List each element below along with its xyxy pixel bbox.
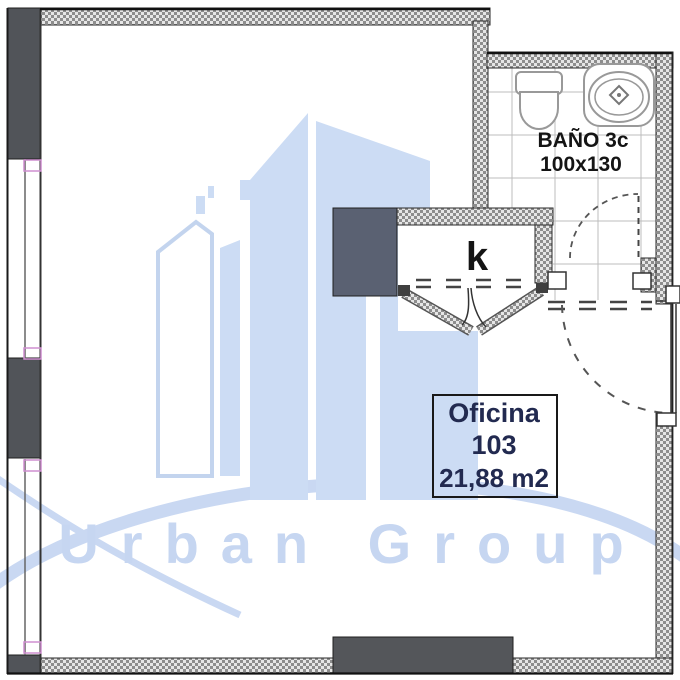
wall-bathroom-left xyxy=(473,21,488,210)
wall-left-block-top xyxy=(8,8,41,159)
wall-left-block-middle xyxy=(8,358,41,458)
window2-cap-bottom xyxy=(24,642,41,653)
wall-right-lower xyxy=(656,413,672,658)
bathroom-dims-label: 100x130 xyxy=(540,153,622,176)
jamb-right-edge xyxy=(666,286,680,303)
floorplan-page: Urban Group xyxy=(0,0,680,680)
office-area-label: 21,88 m2 xyxy=(439,463,549,493)
toilet-icon xyxy=(516,72,562,129)
wall-right-upper xyxy=(656,52,672,304)
wall-top xyxy=(40,8,490,25)
jamb-entry-bottom xyxy=(657,413,676,426)
wall-left-block-bottom xyxy=(8,655,41,674)
window1-cap-top xyxy=(24,160,41,171)
bathroom-fixtures xyxy=(516,64,654,129)
kitchen-door-hinge-left xyxy=(398,285,410,296)
jamb-kitchen-wall xyxy=(548,272,566,289)
kitchen-door-hinge-right xyxy=(536,283,548,293)
wall-kitchen-top xyxy=(397,208,553,225)
window2-cap-top xyxy=(24,460,41,471)
urban-group-logo: Urban Group xyxy=(0,113,680,615)
jamb-bathroom-wall xyxy=(633,273,651,289)
floorplan-canvas: Urban Group xyxy=(0,0,680,680)
sink-icon xyxy=(584,64,654,126)
window1-cap-bottom xyxy=(24,348,41,359)
office-number-label: 103 xyxy=(471,430,516,460)
entry-door-arc xyxy=(562,305,670,413)
office-title-label: Oficina xyxy=(448,398,541,428)
kitchen-label: k xyxy=(466,235,489,279)
bathroom-name-label: BAÑO 3c xyxy=(537,129,628,152)
bathroom-door-arc xyxy=(570,194,638,258)
wall-bottom-block xyxy=(333,637,513,673)
brand-wordmark: Urban Group xyxy=(58,512,645,575)
kitchen-wall-block xyxy=(333,208,397,296)
